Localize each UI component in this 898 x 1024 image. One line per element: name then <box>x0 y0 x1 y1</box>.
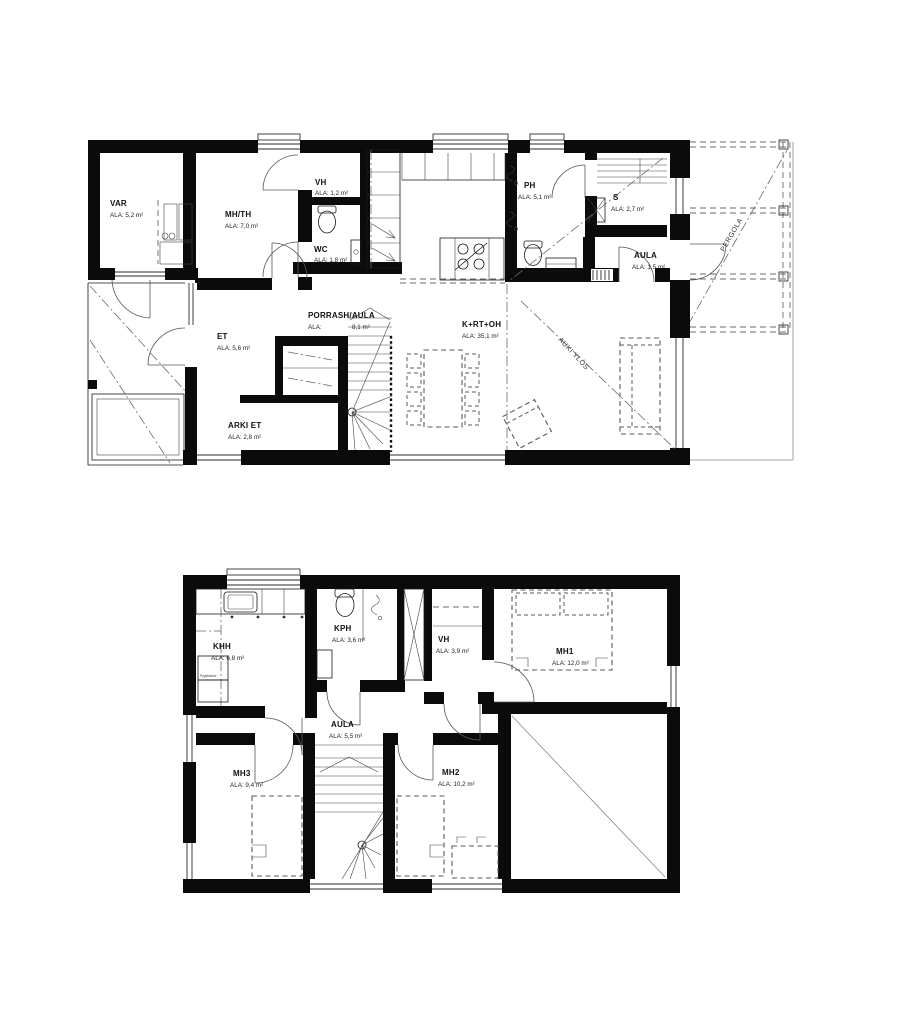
laundry-tower-label: Pyykkitorni <box>200 674 217 678</box>
front-door-opening <box>185 325 197 367</box>
svg-text:ALA: 12,0 m²: ALA: 12,0 m² <box>552 660 589 667</box>
kph-toilet-icon <box>335 589 354 617</box>
kph-shower-icon <box>371 595 381 620</box>
floor-plan-page: PERGOLA <box>0 0 898 1024</box>
room-label-porras: PORRASH/AULA ALA: 8,1 m² <box>308 311 375 331</box>
room-label-mhth: MH/THALA: 7,0 m² <box>225 210 258 230</box>
room-label-s: SALA: 2,7 m² <box>611 193 644 213</box>
svg-text:VAR: VAR <box>110 199 127 208</box>
winder-treads <box>352 396 392 450</box>
room-label-vh: VHALA: 1,2 m² <box>315 178 348 197</box>
floor2-plan: Pyykkitorni <box>183 569 680 893</box>
room-label-wc: WCALA: 1,8 m² <box>314 245 347 264</box>
svg-text:MH2: MH2 <box>442 768 460 777</box>
room-label-arkiet: ARKI ETALA: 2,8 m² <box>228 421 261 441</box>
laundry-tower: Pyykkitorni <box>198 656 228 702</box>
svg-text:ARKI ET: ARKI ET <box>228 421 261 430</box>
svg-text:AULA: AULA <box>331 720 354 729</box>
living-area: AUKI YLÖS <box>407 158 676 450</box>
svg-text:ALA: 1,5 m²: ALA: 1,5 m² <box>632 264 665 271</box>
svg-text:ALA: 3,6 m²: ALA: 3,6 m² <box>332 637 365 644</box>
svg-text:ALA: 3,9 m²: ALA: 3,9 m² <box>436 648 469 655</box>
sofa <box>620 338 660 434</box>
kitchen-fittings <box>400 153 505 283</box>
room-label-ph: PHALA: 5,1 m² <box>518 181 551 201</box>
kitchen-island <box>440 238 504 280</box>
room-label-mh2: MH2ALA: 10,2 m² <box>438 768 475 788</box>
kph-fittings <box>317 589 382 678</box>
room-label-khh: KHHALA: 6,8 m² <box>211 642 244 662</box>
svg-text:ALA: 9,4 m²: ALA: 9,4 m² <box>230 782 263 789</box>
svg-text:ALA: 10,2 m²: ALA: 10,2 m² <box>438 781 475 788</box>
floor1-plan: PERGOLA <box>88 134 793 465</box>
svg-text:ALA: 5,6 m²: ALA: 5,6 m² <box>217 345 250 352</box>
porch-post <box>88 380 97 389</box>
floor-plan-svg: PERGOLA <box>0 0 898 1024</box>
svg-text:ALA: 5,1 m²: ALA: 5,1 m² <box>518 194 551 201</box>
pergola-label: PERGOLA <box>720 217 745 253</box>
aula-exterior-door <box>670 240 690 280</box>
svg-text:ALA: 5,2 m²: ALA: 5,2 m² <box>110 212 143 219</box>
desk-chairs <box>457 837 486 843</box>
void-diagonal <box>512 716 665 877</box>
svg-text:VH: VH <box>315 178 327 187</box>
mh3-bed <box>252 796 302 876</box>
stairs-floor2 <box>315 745 383 879</box>
pergola: PERGOLA <box>688 140 793 460</box>
winder-treads <box>350 818 383 879</box>
svg-text:MH1: MH1 <box>556 647 574 656</box>
room-label-var: VARALA: 5,2 m² <box>110 199 143 219</box>
stairs-floor1 <box>283 308 392 452</box>
sauna-benches <box>597 159 667 183</box>
svg-text:S: S <box>613 193 619 202</box>
pergola-posts <box>779 140 788 334</box>
doormat <box>92 394 184 460</box>
svg-text:WC: WC <box>314 245 328 254</box>
svg-text:MH3: MH3 <box>233 769 251 778</box>
svg-text:ALA: 2,7 m²: ALA: 2,7 m² <box>611 206 644 213</box>
svg-text:ALA: 1,8 m²: ALA: 1,8 m² <box>314 257 347 264</box>
svg-text:ALA: 7,0 m²: ALA: 7,0 m² <box>225 223 258 230</box>
svg-text:ALA:: ALA: <box>308 324 322 331</box>
svg-text:KHH: KHH <box>213 642 231 651</box>
svg-text:AULA: AULA <box>634 251 657 260</box>
wc-toilet-icon <box>318 206 361 264</box>
stair-direction-arrow <box>320 757 378 772</box>
cooktop-icon <box>455 243 487 270</box>
entrance-porch <box>88 283 186 465</box>
svg-text:ET: ET <box>217 332 228 341</box>
svg-text:KPH: KPH <box>334 624 352 633</box>
room-label-et: ETALA: 5,6 m² <box>217 332 250 352</box>
svg-text:ALA: 5,5 m²: ALA: 5,5 m² <box>329 733 362 740</box>
floor1-windows <box>115 134 726 465</box>
room-label-aula1: AULAALA: 1,5 m² <box>632 251 665 271</box>
room-label-aula2: AULAALA: 5,5 m² <box>329 720 362 740</box>
armchair <box>503 400 552 449</box>
hall-closet <box>283 352 338 386</box>
auki-ylos-label: AUKI YLÖS <box>557 336 591 372</box>
room-label-vh2: VHALA: 3,9 m² <box>436 635 469 655</box>
dining-table <box>407 350 479 427</box>
mh2-furniture <box>397 796 498 878</box>
svg-text:ALA: 35,1 m²: ALA: 35,1 m² <box>462 333 499 340</box>
svg-text:ALA: 6,8 m²: ALA: 6,8 m² <box>211 655 244 662</box>
room-label-mh3: MH3ALA: 9,4 m² <box>230 769 263 789</box>
svg-text:VH: VH <box>438 635 450 644</box>
utility-sink-icon <box>224 592 257 612</box>
svg-text:ALA: 1,2 m²: ALA: 1,2 m² <box>315 190 348 197</box>
vh2-fittings <box>433 607 482 626</box>
svg-text:ALA: 2,8 m²: ALA: 2,8 m² <box>228 434 261 441</box>
room-label-krtoh: K+RT+OHALA: 35,1 m² <box>462 320 501 340</box>
svg-text:K+RT+OH: K+RT+OH <box>462 320 501 329</box>
svg-text:PH: PH <box>524 181 536 190</box>
svg-text:MH/TH: MH/TH <box>225 210 251 219</box>
kph-cabinet <box>317 650 332 678</box>
svg-text:8,1 m²: 8,1 m² <box>352 324 370 331</box>
desk <box>452 846 498 878</box>
flue-shaft <box>404 589 424 680</box>
mh1-bed <box>512 590 612 670</box>
room-label-mh1: MH1ALA: 12,0 m² <box>552 647 589 667</box>
appliance-column <box>367 150 400 268</box>
svg-text:PORRASH/AULA: PORRASH/AULA <box>308 311 375 320</box>
room-label-kph: KPHALA: 3,6 m² <box>332 624 365 644</box>
floor1-walls <box>88 140 690 465</box>
